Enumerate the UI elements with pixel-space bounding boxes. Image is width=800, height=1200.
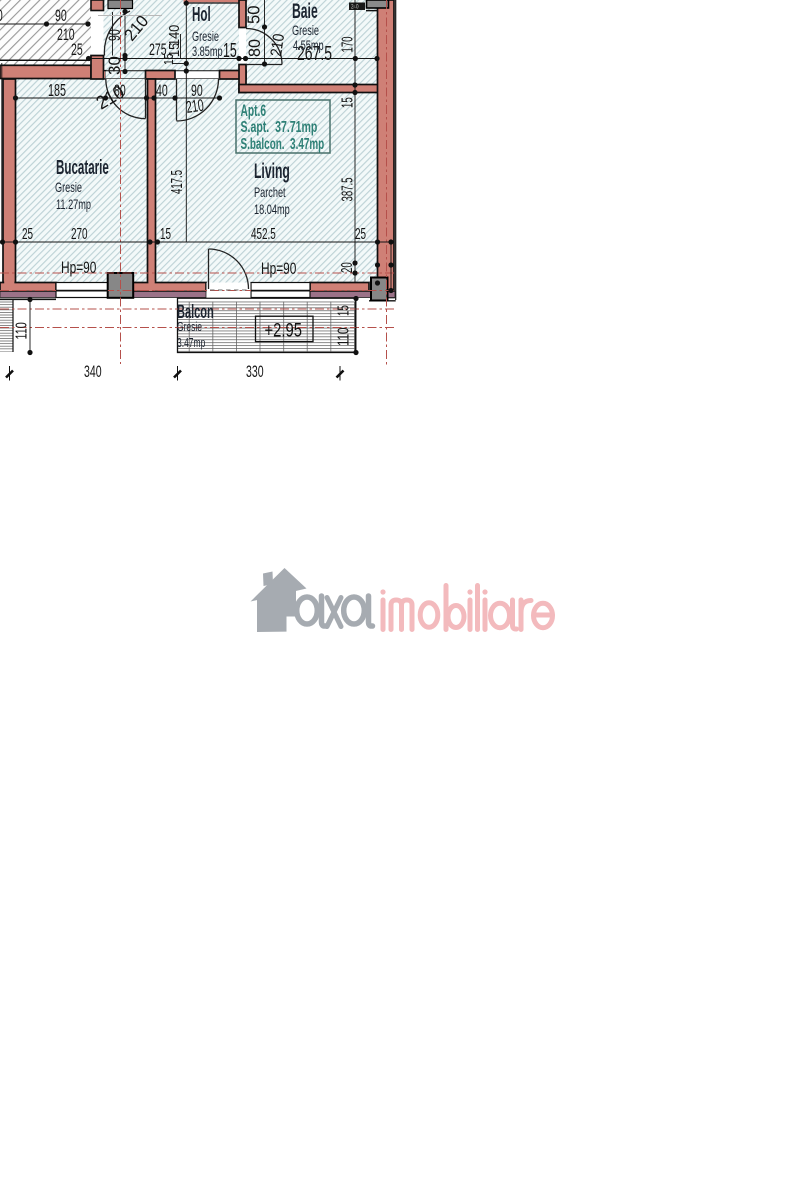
svg-text:3.47mp: 3.47mp bbox=[177, 336, 205, 350]
svg-text:S.balcon. 3.47mp: S.balcon. 3.47mp bbox=[241, 135, 325, 153]
svg-text:20: 20 bbox=[338, 262, 356, 273]
svg-text:185: 185 bbox=[48, 81, 66, 100]
svg-text:15: 15 bbox=[338, 97, 356, 108]
svg-text:4.55mp: 4.55mp bbox=[293, 39, 324, 53]
svg-text:30: 30 bbox=[105, 56, 124, 75]
svg-text:90: 90 bbox=[0, 5, 3, 24]
svg-text:90: 90 bbox=[55, 5, 67, 24]
svg-text:330: 330 bbox=[246, 361, 264, 380]
svg-text:S.apt. 37.71mp: S.apt. 37.71mp bbox=[241, 118, 318, 136]
svg-text:210: 210 bbox=[268, 33, 288, 58]
svg-text:25: 25 bbox=[22, 225, 33, 243]
svg-text:50: 50 bbox=[244, 6, 263, 24]
svg-text:387.5: 387.5 bbox=[338, 177, 356, 201]
svg-text:452.5: 452.5 bbox=[251, 225, 276, 243]
svg-text:110: 110 bbox=[335, 327, 352, 346]
svg-text:Hp=90: Hp=90 bbox=[61, 259, 96, 278]
svg-text:15: 15 bbox=[162, 53, 176, 65]
svg-text:15: 15 bbox=[223, 39, 237, 62]
svg-text:Gresie: Gresie bbox=[55, 181, 82, 195]
svg-text:417.5: 417.5 bbox=[168, 170, 186, 194]
svg-text:340: 340 bbox=[84, 361, 102, 380]
svg-text:170: 170 bbox=[338, 36, 356, 52]
svg-text:270: 270 bbox=[71, 225, 88, 243]
svg-text:Bucatarie: Bucatarie bbox=[56, 157, 109, 179]
svg-text:Baie: Baie bbox=[292, 0, 318, 23]
svg-text:110: 110 bbox=[12, 322, 29, 339]
svg-text:Gresie: Gresie bbox=[177, 320, 202, 334]
svg-text:25: 25 bbox=[355, 225, 366, 243]
svg-text:210: 210 bbox=[185, 95, 205, 117]
svg-text:25: 25 bbox=[71, 39, 83, 58]
svg-text:11.27mp: 11.27mp bbox=[56, 198, 91, 212]
svg-text:Hol: Hol bbox=[192, 4, 211, 26]
svg-text:3.85mp: 3.85mp bbox=[192, 45, 223, 59]
svg-text:15: 15 bbox=[160, 225, 171, 243]
svg-text:+2.95: +2.95 bbox=[265, 318, 302, 341]
svg-text:140: 140 bbox=[165, 25, 182, 46]
svg-text:Gresie: Gresie bbox=[292, 24, 319, 38]
svg-text:Gresie: Gresie bbox=[192, 30, 219, 44]
svg-text:Hp=90: Hp=90 bbox=[261, 260, 296, 279]
svg-text:15: 15 bbox=[334, 305, 352, 316]
svg-text:40: 40 bbox=[156, 80, 168, 99]
svg-text:18.04mp: 18.04mp bbox=[254, 203, 290, 217]
svg-text:Parchet: Parchet bbox=[254, 186, 286, 200]
svg-text:80: 80 bbox=[245, 39, 264, 57]
svg-text:Living: Living bbox=[254, 158, 290, 182]
